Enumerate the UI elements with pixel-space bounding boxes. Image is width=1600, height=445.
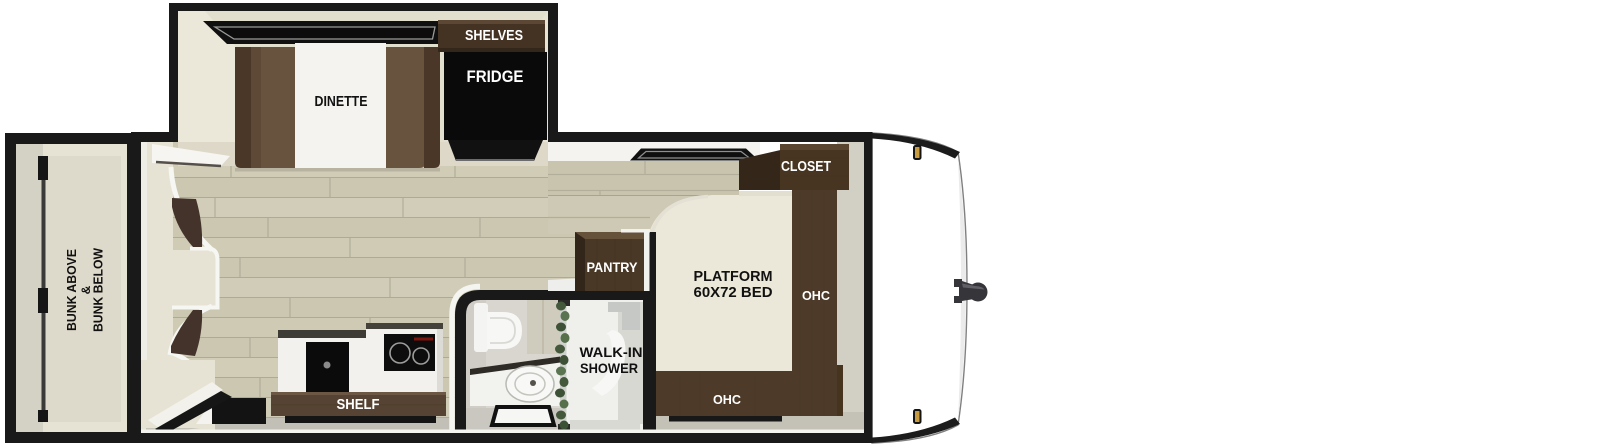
svg-text:FRIDGE: FRIDGE [467, 67, 524, 86]
svg-text:SHELF: SHELF [337, 397, 380, 413]
svg-text:PLATFORM: PLATFORM [694, 268, 773, 285]
svg-text:SHOWER: SHOWER [580, 360, 638, 376]
svg-text:CLOSET: CLOSET [781, 159, 831, 175]
svg-text:OHC: OHC [802, 288, 831, 303]
svg-text:WALK-IN: WALK-IN [580, 344, 643, 360]
svg-text:DINETTE: DINETTE [315, 93, 368, 110]
svg-text:OHC: OHC [713, 392, 742, 407]
svg-text:SHELVES: SHELVES [465, 28, 523, 44]
svg-text:PANTRY: PANTRY [587, 260, 638, 275]
svg-text:BUNK BELOW: BUNK BELOW [91, 247, 106, 332]
svg-text:BUNK ABOVE: BUNK ABOVE [64, 249, 79, 331]
svg-text:60X72 BED: 60X72 BED [694, 284, 773, 301]
